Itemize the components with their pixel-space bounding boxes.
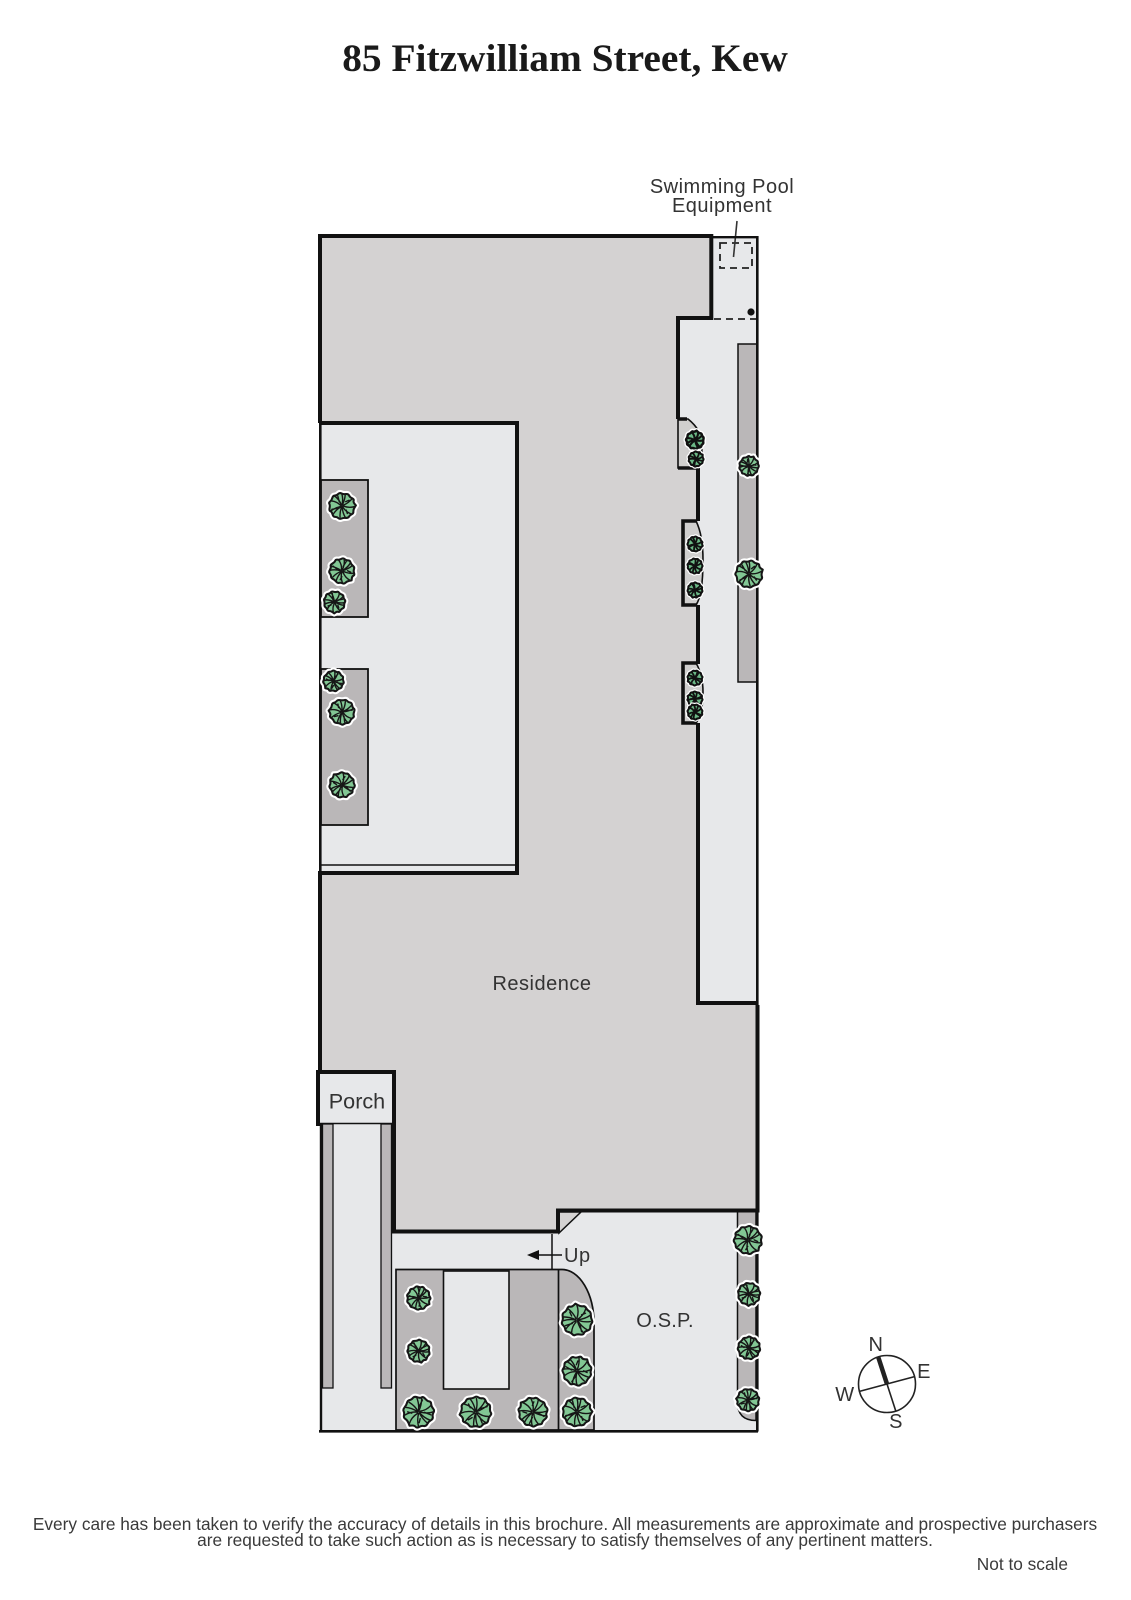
svg-text:E: E	[917, 1361, 931, 1383]
svg-text:O.S.P.: O.S.P.	[636, 1310, 694, 1332]
svg-text:Not to scale: Not to scale	[977, 1554, 1068, 1574]
svg-text:Porch: Porch	[329, 1089, 385, 1114]
svg-text:Up: Up	[564, 1245, 591, 1267]
svg-text:S: S	[889, 1411, 903, 1433]
svg-text:85 Fitzwilliam Street, Kew: 85 Fitzwilliam Street, Kew	[342, 36, 788, 80]
svg-text:W: W	[835, 1384, 854, 1406]
svg-text:N: N	[869, 1334, 884, 1356]
svg-text:Equipment: Equipment	[672, 195, 772, 217]
svg-text:Residence: Residence	[492, 973, 591, 995]
svg-text:are requested to take such act: are requested to take such action as is …	[197, 1530, 933, 1550]
